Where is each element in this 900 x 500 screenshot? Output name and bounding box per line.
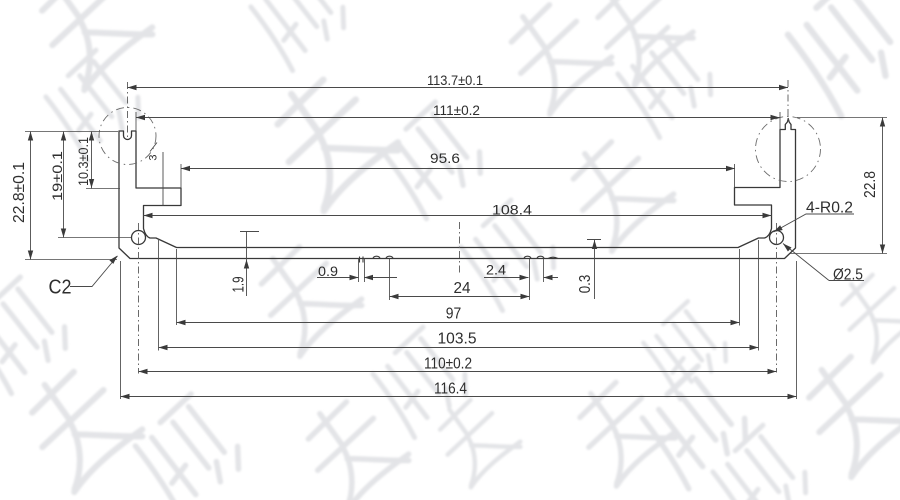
svg-text:0.3: 0.3 xyxy=(577,275,594,294)
svg-text:111±0.2: 111±0.2 xyxy=(433,102,480,118)
svg-text:1.9: 1.9 xyxy=(231,276,248,292)
svg-text:24: 24 xyxy=(454,280,471,297)
svg-text:C2: C2 xyxy=(49,277,72,299)
svg-text:4-R0.2: 4-R0.2 xyxy=(806,200,853,217)
svg-text:3: 3 xyxy=(148,154,160,160)
svg-text:Ø2.5: Ø2.5 xyxy=(833,267,863,284)
svg-text:116.4: 116.4 xyxy=(434,381,467,398)
svg-text:108.4: 108.4 xyxy=(492,202,532,218)
svg-text:22.8±0.1: 22.8±0.1 xyxy=(11,162,28,223)
svg-text:113.7±0.1: 113.7±0.1 xyxy=(427,72,483,88)
svg-text:10.3±0.1: 10.3±0.1 xyxy=(75,137,91,186)
svg-text:0.9: 0.9 xyxy=(318,263,338,279)
svg-text:110±0.2: 110±0.2 xyxy=(424,356,472,373)
svg-text:97: 97 xyxy=(446,306,462,323)
svg-text:19±0.1: 19±0.1 xyxy=(49,151,65,201)
svg-text:95.6: 95.6 xyxy=(430,150,460,166)
svg-text:2.4: 2.4 xyxy=(486,262,506,278)
svg-text:103.5: 103.5 xyxy=(438,331,477,348)
svg-text:22.8: 22.8 xyxy=(862,171,879,198)
